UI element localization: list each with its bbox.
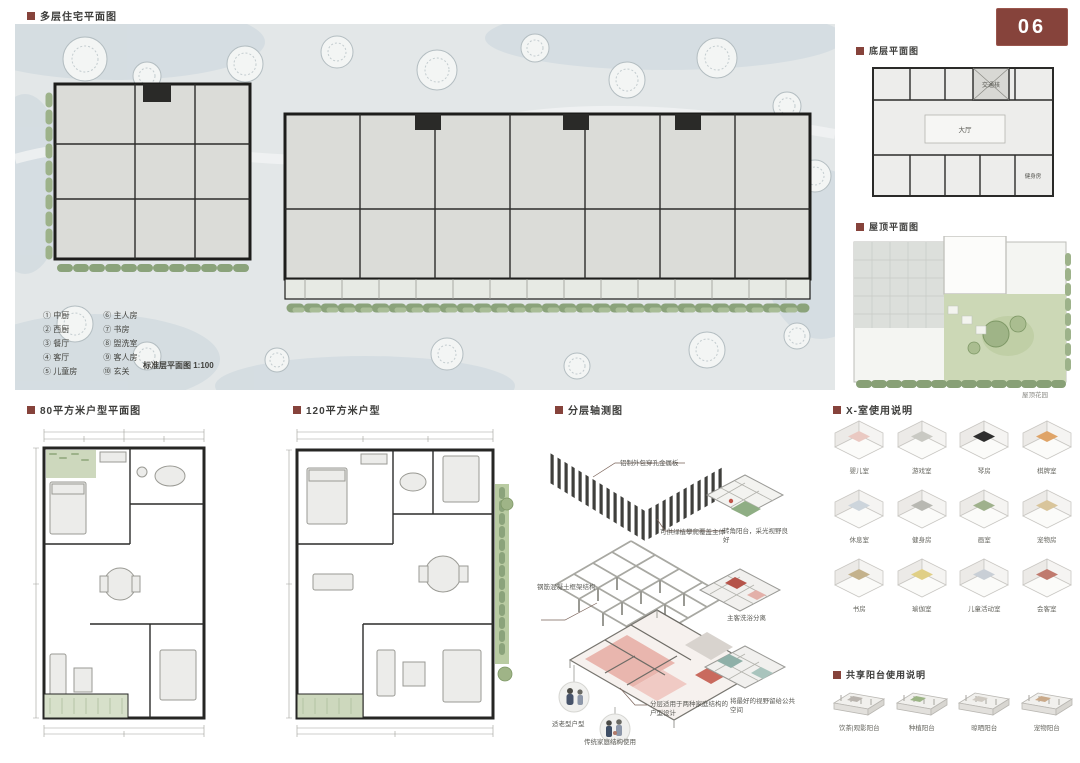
xroom-cell: 画室 — [955, 489, 1014, 544]
iso-room-icon — [1022, 420, 1072, 462]
unit80-plan-drawing — [30, 424, 226, 746]
iso-room-icon — [959, 420, 1009, 462]
legend-item: ④ 客厅 — [43, 352, 77, 363]
unit80-plan-panel — [30, 424, 226, 746]
iso-room-icon — [834, 558, 884, 600]
iso-room-icon — [897, 558, 947, 600]
balcony-label: 宠物阳台 — [1034, 722, 1060, 732]
xroom-label: 画室 — [978, 534, 991, 544]
legend-item: ⑤ 儿童房 — [43, 366, 77, 377]
iso-room-icon — [897, 489, 947, 531]
iso-balcony-icon — [956, 686, 1012, 718]
xroom-label: 瑜伽室 — [912, 603, 932, 613]
section-title-main: 多层住宅平面图 — [27, 8, 117, 23]
xrooms-title-text: X-室使用说明 — [846, 402, 913, 417]
xroom-label: 休息室 — [850, 534, 870, 544]
iso-room-icon — [959, 558, 1009, 600]
legend-item: ⑦ 书房 — [103, 324, 137, 335]
balcony-label: 种植阳台 — [909, 722, 935, 732]
roof-title-text: 屋顶平面图 — [869, 220, 919, 233]
xroom-cell: 宠物房 — [1018, 489, 1077, 544]
axon-label-view: 将最好的视野留给公共空间 — [730, 697, 796, 716]
xroom-cell: 琴房 — [955, 420, 1014, 475]
title-bullet — [27, 12, 35, 20]
balcony-label: 晾晒阳台 — [971, 722, 997, 732]
axon-label-bath: 主客洗浴分离 — [727, 614, 766, 623]
axon-label-dual: 分层适用于两种家庭结构的户型设计 — [650, 700, 732, 719]
xroom-cell: 棋牌室 — [1018, 420, 1077, 475]
site-plan-drawing — [15, 24, 835, 390]
legend-item: ⑩ 玄关 — [103, 366, 137, 377]
plan-scale-caption: 标准层平面图 1:100 — [143, 360, 214, 371]
main-title-text: 多层住宅平面图 — [40, 8, 117, 23]
ground-gym-label: 健身房 — [1025, 172, 1042, 180]
legend-item: ① 中厨 — [43, 310, 77, 321]
xroom-label: 棋牌室 — [1037, 465, 1057, 475]
xroom-label: 琴房 — [978, 465, 991, 475]
ground-title-text: 底层平面图 — [869, 44, 919, 57]
axon-label-corner: 转角阳台，采光视野良好 — [723, 527, 789, 546]
plan-legend: ① 中厨 ② 西厨 ③ 餐厅 ④ 客厅 ⑤ 儿童房 ⑥ 主人房 ⑦ 书房 ⑧ 盥… — [43, 310, 137, 377]
xroom-grid: 婴儿室 游戏室 琴房 — [830, 420, 1076, 613]
unit120-title-text: 120平方米户型 — [306, 402, 381, 417]
vignette-elder — [559, 665, 589, 712]
balcony-grid: 饮茶|观影阳台 种植阳台 晾晒阳台 — [830, 686, 1076, 732]
page-number: 06 — [1018, 16, 1046, 39]
legend-item: ② 西厨 — [43, 324, 77, 335]
xroom-label: 书房 — [853, 603, 866, 613]
balcony-cell: 宠物阳台 — [1018, 686, 1077, 732]
section-title-unit120: 120平方米户型 — [293, 402, 381, 417]
page-number-badge: 06 — [996, 8, 1068, 46]
title-bullet — [856, 47, 864, 55]
title-bullet — [833, 671, 841, 679]
ground-plan-drawing: 交通核 大厅 健身房 — [855, 60, 1071, 210]
section-title-roof: 屋顶平面图 — [856, 220, 919, 233]
balcony-title-text: 共享阳台使用说明 — [846, 668, 926, 681]
xroom-cell: 婴儿室 — [830, 420, 889, 475]
xroom-label: 儿童活动室 — [968, 603, 1001, 613]
axon-label-elder: 适老型户型 — [552, 720, 585, 729]
section-title-xrooms: X-室使用说明 — [833, 402, 913, 417]
section-title-unit80: 80平方米户型平面图 — [27, 402, 141, 417]
roof-garden-caption: 屋顶花园 — [1022, 389, 1048, 399]
legend-item: ⑧ 盥洗室 — [103, 338, 137, 349]
title-bullet — [27, 406, 35, 414]
axon-label-greenery: 可供绿植攀爬覆盖主体 — [660, 528, 725, 537]
roof-plan-panel — [848, 236, 1074, 388]
title-bullet — [555, 406, 563, 414]
ground-plan-panel: 交通核 大厅 健身房 — [855, 60, 1071, 210]
xroom-label: 会客室 — [1037, 603, 1057, 613]
roof-plan-drawing — [848, 236, 1074, 388]
unit120-plan-drawing — [283, 424, 525, 746]
xroom-label: 宠物房 — [1037, 534, 1057, 544]
ground-core-label: 交通核 — [982, 81, 1000, 89]
iso-room-icon — [959, 489, 1009, 531]
section-title-balcony: 共享阳台使用说明 — [833, 668, 926, 681]
xroom-label: 游戏室 — [912, 465, 932, 475]
xroom-cell: 健身房 — [893, 489, 952, 544]
title-bullet — [293, 406, 301, 414]
axon-label-family: 传统家庭结构使用 — [584, 738, 636, 747]
legend-item: ⑥ 主人房 — [103, 310, 137, 321]
xroom-cell: 瑜伽室 — [893, 558, 952, 613]
legend-item: ⑨ 客人房 — [103, 352, 137, 363]
balcony-cell: 饮茶|观影阳台 — [830, 686, 889, 732]
axon-label-structure: 钢筋混凝土框架结构 — [537, 583, 596, 592]
xroom-cell: 游戏室 — [893, 420, 952, 475]
iso-room-icon — [1022, 558, 1072, 600]
xroom-label: 婴儿室 — [850, 465, 870, 475]
iso-room-icon — [834, 489, 884, 531]
balcony-label: 饮茶|观影阳台 — [839, 722, 880, 732]
title-bullet — [856, 223, 864, 231]
section-title-ground: 底层平面图 — [856, 44, 919, 57]
legend-item: ③ 餐厅 — [43, 338, 77, 349]
xroom-cell: 书房 — [830, 558, 889, 613]
iso-room-icon — [834, 420, 884, 462]
iso-balcony-icon — [894, 686, 950, 718]
unit80-title-text: 80平方米户型平面图 — [40, 402, 141, 417]
xroom-label: 健身房 — [912, 534, 932, 544]
xroom-cell: 会客室 — [1018, 558, 1077, 613]
legend-column-right: ⑥ 主人房 ⑦ 书房 ⑧ 盥洗室 ⑨ 客人房 ⑩ 玄关 — [103, 310, 137, 377]
iso-room-icon — [1022, 489, 1072, 531]
ground-hall-label: 大厅 — [959, 125, 973, 134]
iso-balcony-icon — [1019, 686, 1075, 718]
site-plan-panel: ① 中厨 ② 西厨 ③ 餐厅 ④ 客厅 ⑤ 儿童房 ⑥ 主人房 ⑦ 书房 ⑧ 盥… — [15, 24, 835, 390]
unit120-plan-panel — [283, 424, 525, 746]
balcony-cell: 晾晒阳台 — [955, 686, 1014, 732]
xroom-cell: 儿童活动室 — [955, 558, 1014, 613]
balcony-cell: 种植阳台 — [893, 686, 952, 732]
axon-label-panel: 铝制外包穿孔金属板 — [620, 459, 679, 468]
legend-column-left: ① 中厨 ② 西厨 ③ 餐厅 ④ 客厅 ⑤ 儿童房 — [43, 310, 77, 377]
iso-room-icon — [897, 420, 947, 462]
iso-balcony-icon — [831, 686, 887, 718]
presentation-board: 多层住宅平面图 06 — [0, 0, 1080, 763]
title-bullet — [833, 406, 841, 414]
xroom-cell: 休息室 — [830, 489, 889, 544]
